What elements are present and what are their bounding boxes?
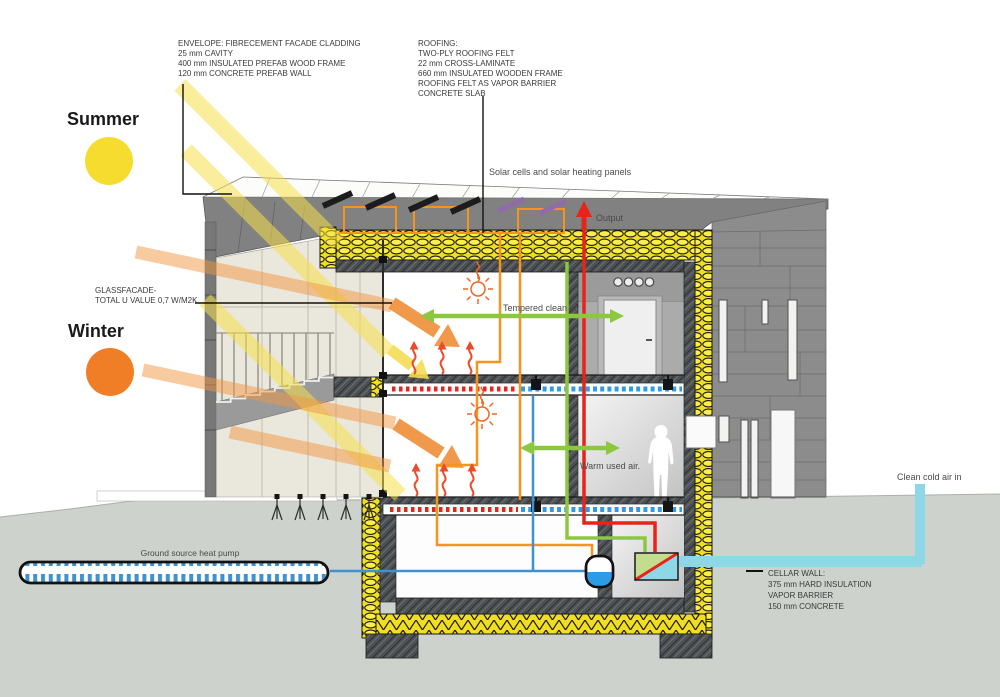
summer-label: Summer (67, 109, 139, 129)
diagram-svg: Summer Winter ENVELOPE: FIBRECEMENT FACA… (0, 0, 1000, 697)
ground-source-loop (20, 562, 328, 583)
glassfacade-line: GLASSFACADE- (95, 286, 157, 295)
room-top-right (578, 272, 684, 377)
glassfacade-annotation: GLASSFACADE- TOTAL U VALUE 0,7 W/M2K (95, 286, 198, 305)
envelope-line: 120 mm CONCRETE PREFAB WALL (178, 69, 312, 78)
roof-insulation (336, 230, 695, 260)
roofing-line: 660 mm INSULATED WOODEN FRAME (418, 69, 563, 78)
footing (366, 634, 418, 658)
cellar-line: 150 mm CONCRETE (768, 602, 844, 611)
facade-door (771, 410, 795, 498)
cellar-line: CELLAR WALL: (768, 569, 825, 578)
glassfacade-line: TOTAL U VALUE 0,7 W/M2K (95, 296, 198, 305)
energy-section-diagram: Summer Winter ENVELOPE: FIBRECEMENT FACA… (0, 0, 1000, 697)
roofing-line: ROOFING: (418, 39, 458, 48)
cellar-line: 375 mm HARD INSULATION (768, 580, 872, 589)
basement-floor-slab (396, 598, 684, 614)
roofing-line: CONCRETE SLAB (418, 89, 486, 98)
winter-sun-icon (86, 348, 134, 396)
winter-label: Winter (68, 321, 124, 341)
roofing-line: ROOFING FELT AS VAPOR BARRIER (418, 79, 556, 88)
envelope-line: 25 mm CAVITY (178, 49, 234, 58)
solar-panels-label: Solar cells and solar heating panels (489, 167, 632, 177)
right-facade (712, 201, 826, 498)
roofing-annotation: ROOFING: TWO-PLY ROOFING FELT 22 mm CROS… (418, 39, 563, 98)
tempered-air-label: Tempered clean air (503, 303, 580, 313)
hot-water-tank (586, 556, 613, 587)
ground-pump-label: Ground source heat pump (141, 548, 240, 558)
cold-air-label: Clean cold air in (897, 472, 962, 482)
summer-sun-icon (85, 137, 133, 185)
vent-unit (686, 416, 716, 448)
heat-exchanger (635, 553, 678, 580)
roofing-line: TWO-PLY ROOFING FELT (418, 49, 515, 58)
output-label: Output (596, 213, 624, 223)
cellar-line: VAPOR BARRIER (768, 591, 833, 600)
footing (660, 634, 712, 658)
envelope-annotation: ENVELOPE: FIBRECEMENT FACADE CLADDING 25… (178, 39, 361, 78)
warm-air-label: Warm used air. (580, 461, 640, 471)
roof-slab (336, 260, 684, 272)
roofing-line: 22 mm CROSS-LAMINATE (418, 59, 515, 68)
envelope-line: 400 mm INSULATED PREFAB WOOD FRAME (178, 59, 345, 68)
envelope-line: ENVELOPE: FIBRECEMENT FACADE CLADDING (178, 39, 361, 48)
floor-insulation (376, 614, 706, 634)
